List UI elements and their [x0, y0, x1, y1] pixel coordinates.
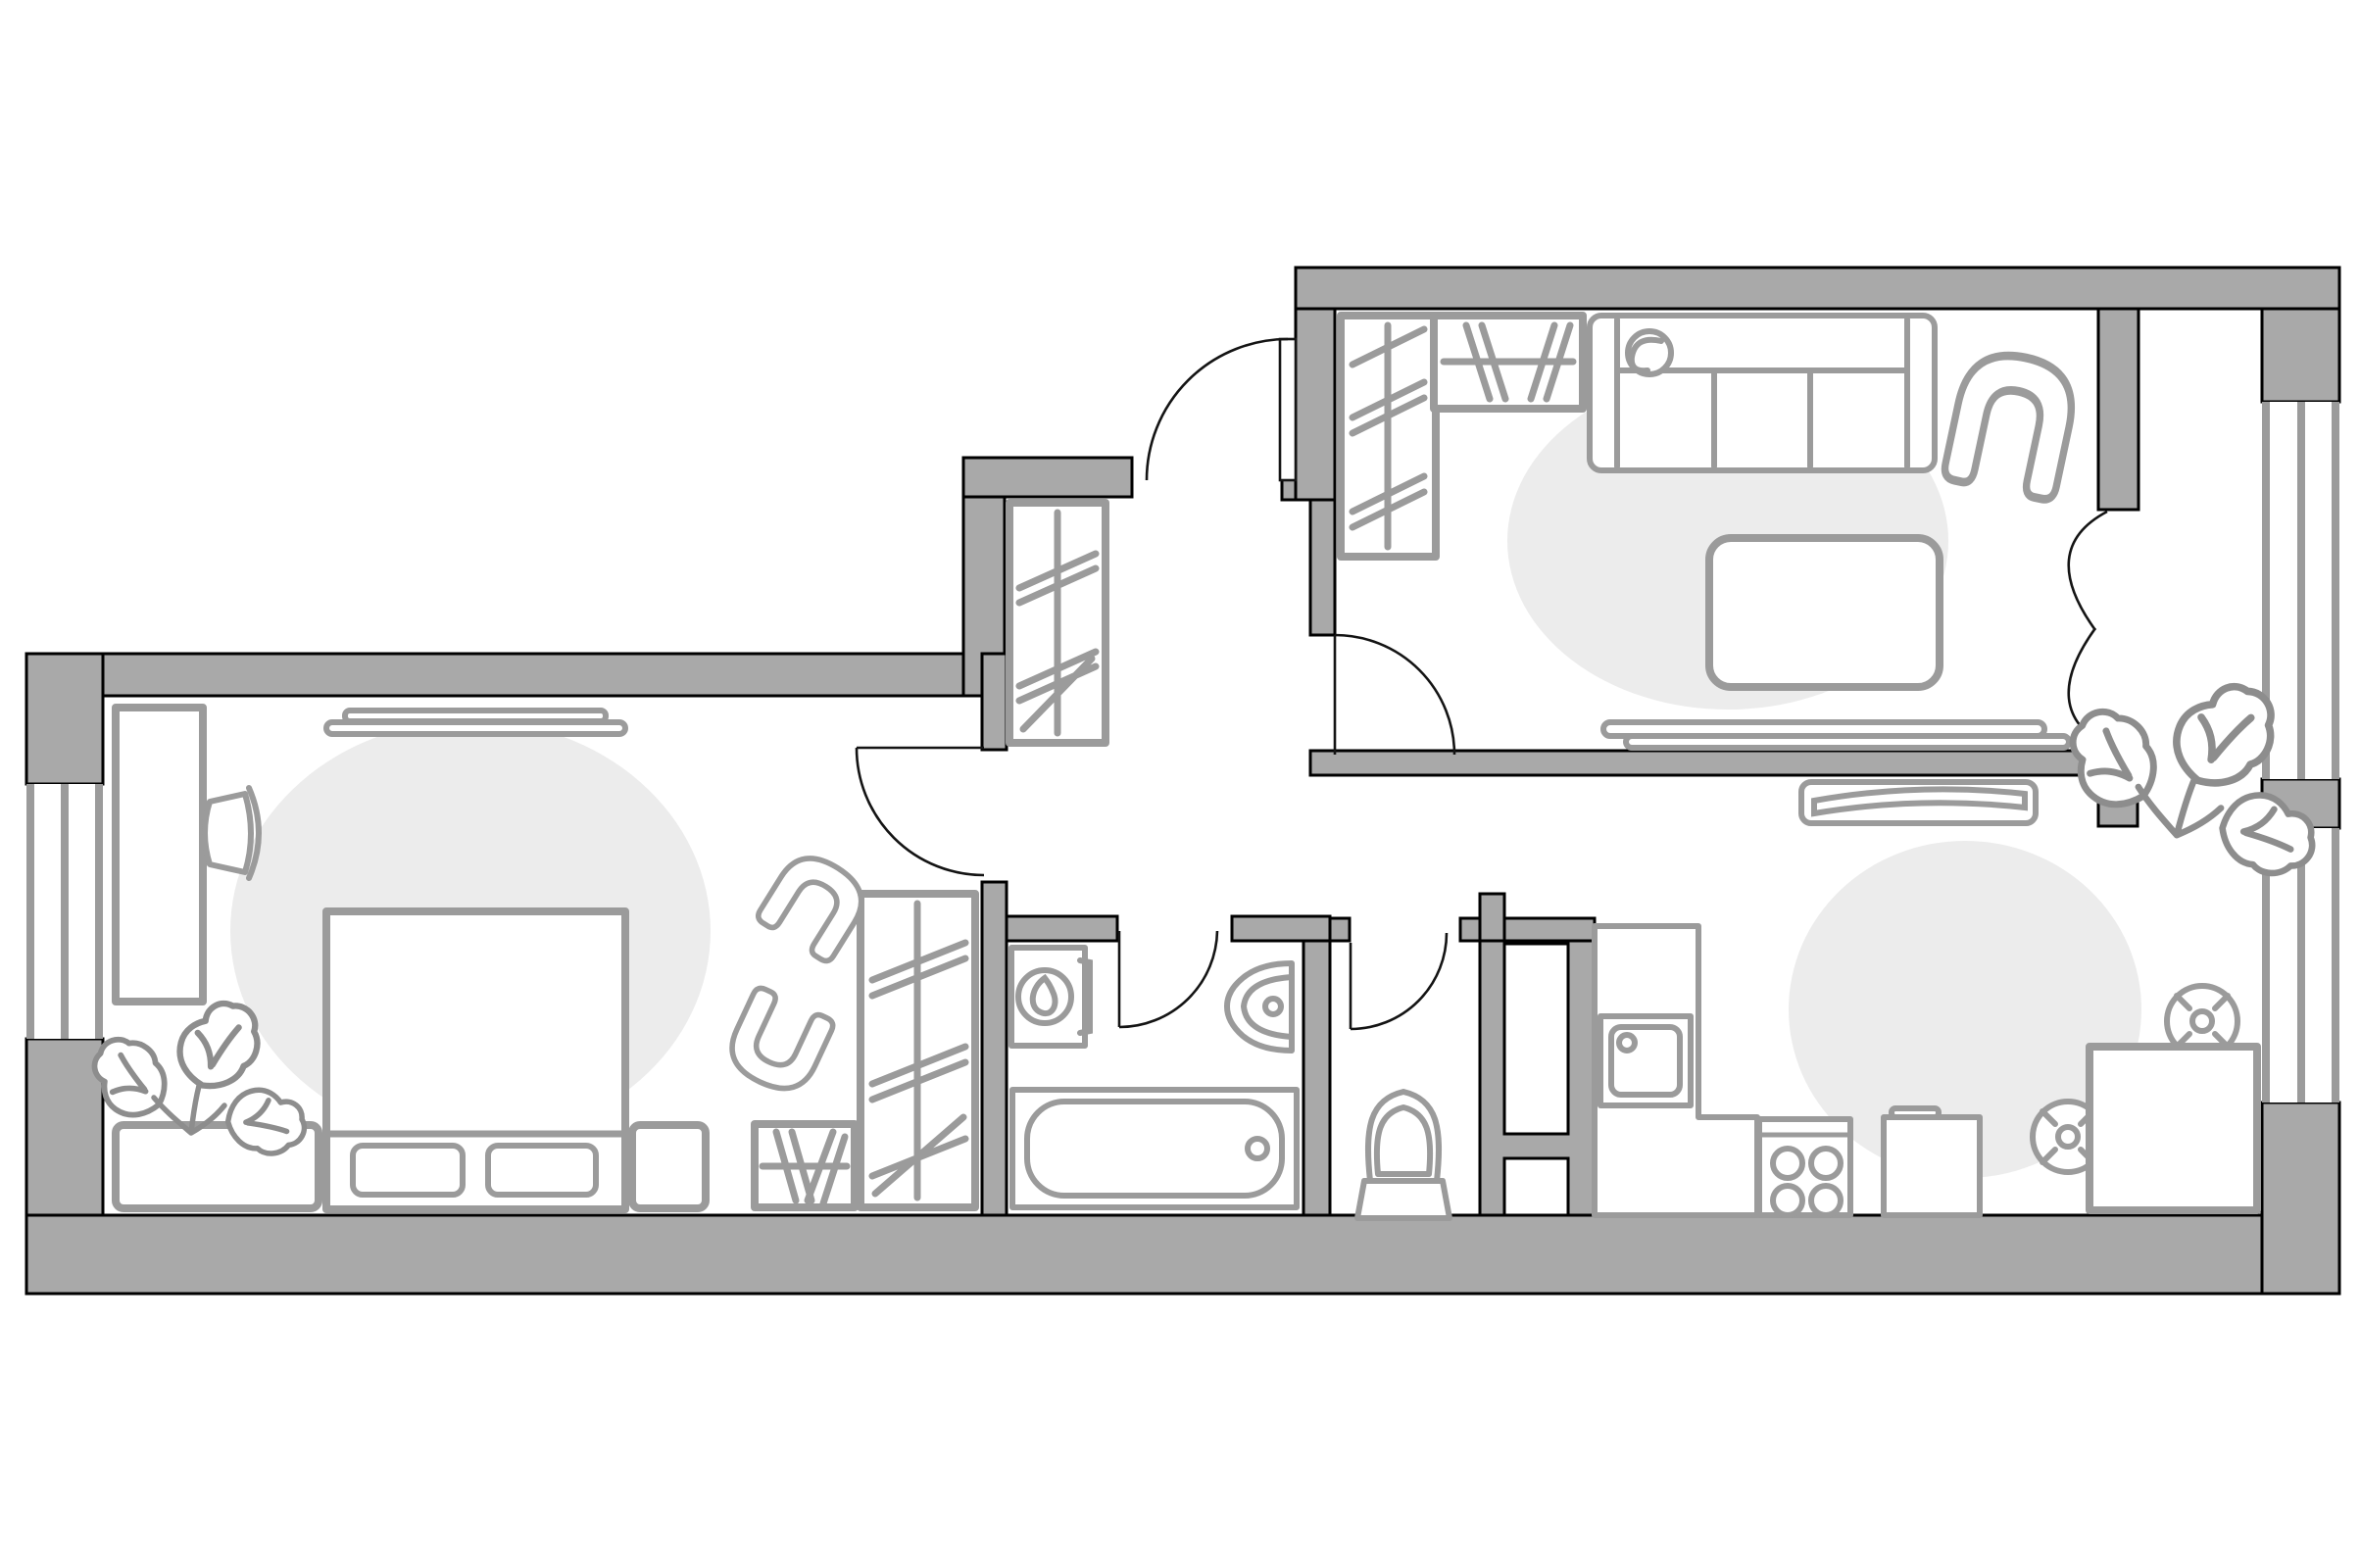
sofa — [1590, 316, 1935, 470]
wall-bathroom-top-left — [1007, 916, 1117, 941]
bedroom-door — [857, 748, 984, 875]
wall-living-left-thin — [1310, 500, 1335, 635]
wall-top-exterior — [1296, 268, 2339, 309]
wall-bedroom-partition-upper — [982, 654, 1007, 750]
bathtub — [1012, 1090, 1297, 1207]
wall-hall-top — [963, 458, 1132, 497]
bed-pillow — [353, 1146, 463, 1195]
dining-table — [2090, 1047, 2257, 1210]
stove — [1759, 1119, 1850, 1215]
washing-machine — [1011, 948, 1090, 1046]
floor-plan-drawing — [0, 0, 2360, 1568]
tv-console — [1603, 722, 2069, 748]
wall-bedroom-left-upper — [26, 654, 103, 784]
bedroom-window — [26, 784, 103, 1039]
living-armchair — [1942, 346, 2082, 502]
wall-living-bottom — [1310, 751, 2098, 775]
wall-bottom-exterior — [26, 1215, 2339, 1294]
floor-plan-page — [0, 0, 2360, 1568]
wall-bedroom-partition-lower — [982, 882, 1007, 1215]
fridge — [1884, 1108, 1980, 1215]
wall-french-door-stub — [2098, 309, 2139, 510]
kitchen-sink — [1600, 1016, 1691, 1105]
double-bed — [326, 911, 625, 1209]
living-room-door — [1335, 635, 1454, 755]
bed-pillow — [488, 1146, 596, 1195]
wall-wc-jamb — [1330, 918, 1350, 941]
wall-shaft-tongue — [1480, 894, 1504, 941]
wall-rail-shelf — [326, 710, 625, 734]
wall-bedroom-top — [26, 654, 982, 696]
wall-right-top-block — [2262, 309, 2339, 402]
shaft-niche-small — [1504, 1158, 1568, 1215]
coffee-table — [1709, 538, 1940, 687]
nightstand — [632, 1125, 706, 1208]
wall-bathroom-top-right — [1232, 916, 1330, 941]
wc-toilet — [1357, 1092, 1450, 1218]
hatched-storage-bench — [755, 1124, 855, 1207]
bedroom-wardrobe — [860, 894, 975, 1207]
sofa-pillow — [1628, 331, 1671, 374]
kitchen-wall-shelf — [1801, 782, 2036, 823]
bathroom-door — [1119, 931, 1217, 1027]
living-room-window — [2262, 402, 2339, 779]
bathroom-sink — [1227, 963, 1292, 1051]
bathroom — [1011, 948, 1297, 1207]
hall-closet — [1009, 503, 1106, 743]
bedroom-armchair-2 — [721, 986, 836, 1101]
entry-door — [1147, 339, 1296, 480]
wall-bathroom-wc-divider — [1303, 941, 1330, 1215]
bedroom-armchair-1 — [756, 845, 874, 963]
wall-right-corner-block — [2262, 1102, 2339, 1294]
desk — [116, 708, 203, 1002]
shaft-niche-tall — [1504, 944, 1568, 1134]
wc-door — [1351, 933, 1447, 1029]
